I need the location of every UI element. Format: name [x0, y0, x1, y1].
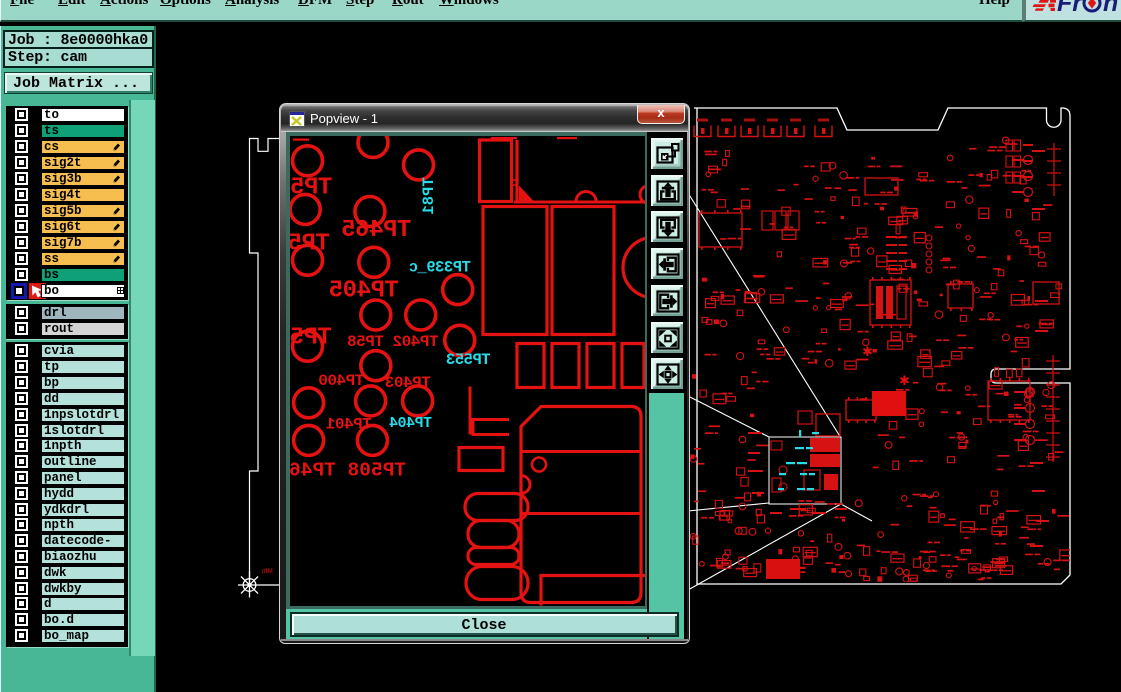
- svg-text:TP55: TP55: [290, 231, 330, 258]
- svg-text:dfM: dfM: [262, 568, 273, 575]
- svg-text:TP405: TP405: [329, 278, 399, 305]
- svg-text:✱: ✱: [899, 373, 910, 388]
- svg-text:TP508 TP46: TP508 TP46: [290, 460, 406, 482]
- svg-text:✱: ✱: [862, 344, 873, 359]
- svg-text:TP401: TP401: [326, 416, 372, 434]
- svg-text:TP553: TP553: [446, 351, 490, 369]
- svg-text:TP55: TP55: [290, 175, 332, 202]
- svg-text:TP51: TP51: [290, 325, 332, 352]
- svg-text:TP400: TP400: [318, 372, 364, 390]
- svg-text:TP404: TP404: [388, 415, 431, 432]
- svg-text:TP81: TP81: [420, 177, 438, 214]
- svg-text:TP403: TP403: [385, 374, 431, 392]
- svg-text:n: n: [1103, 0, 1118, 17]
- svg-text:TP465: TP465: [341, 217, 411, 244]
- svg-text:TP402 TP58: TP402 TP58: [347, 333, 438, 351]
- svg-text:TP339_c: TP339_c: [409, 259, 471, 277]
- svg-text:Fr: Fr: [1057, 0, 1083, 17]
